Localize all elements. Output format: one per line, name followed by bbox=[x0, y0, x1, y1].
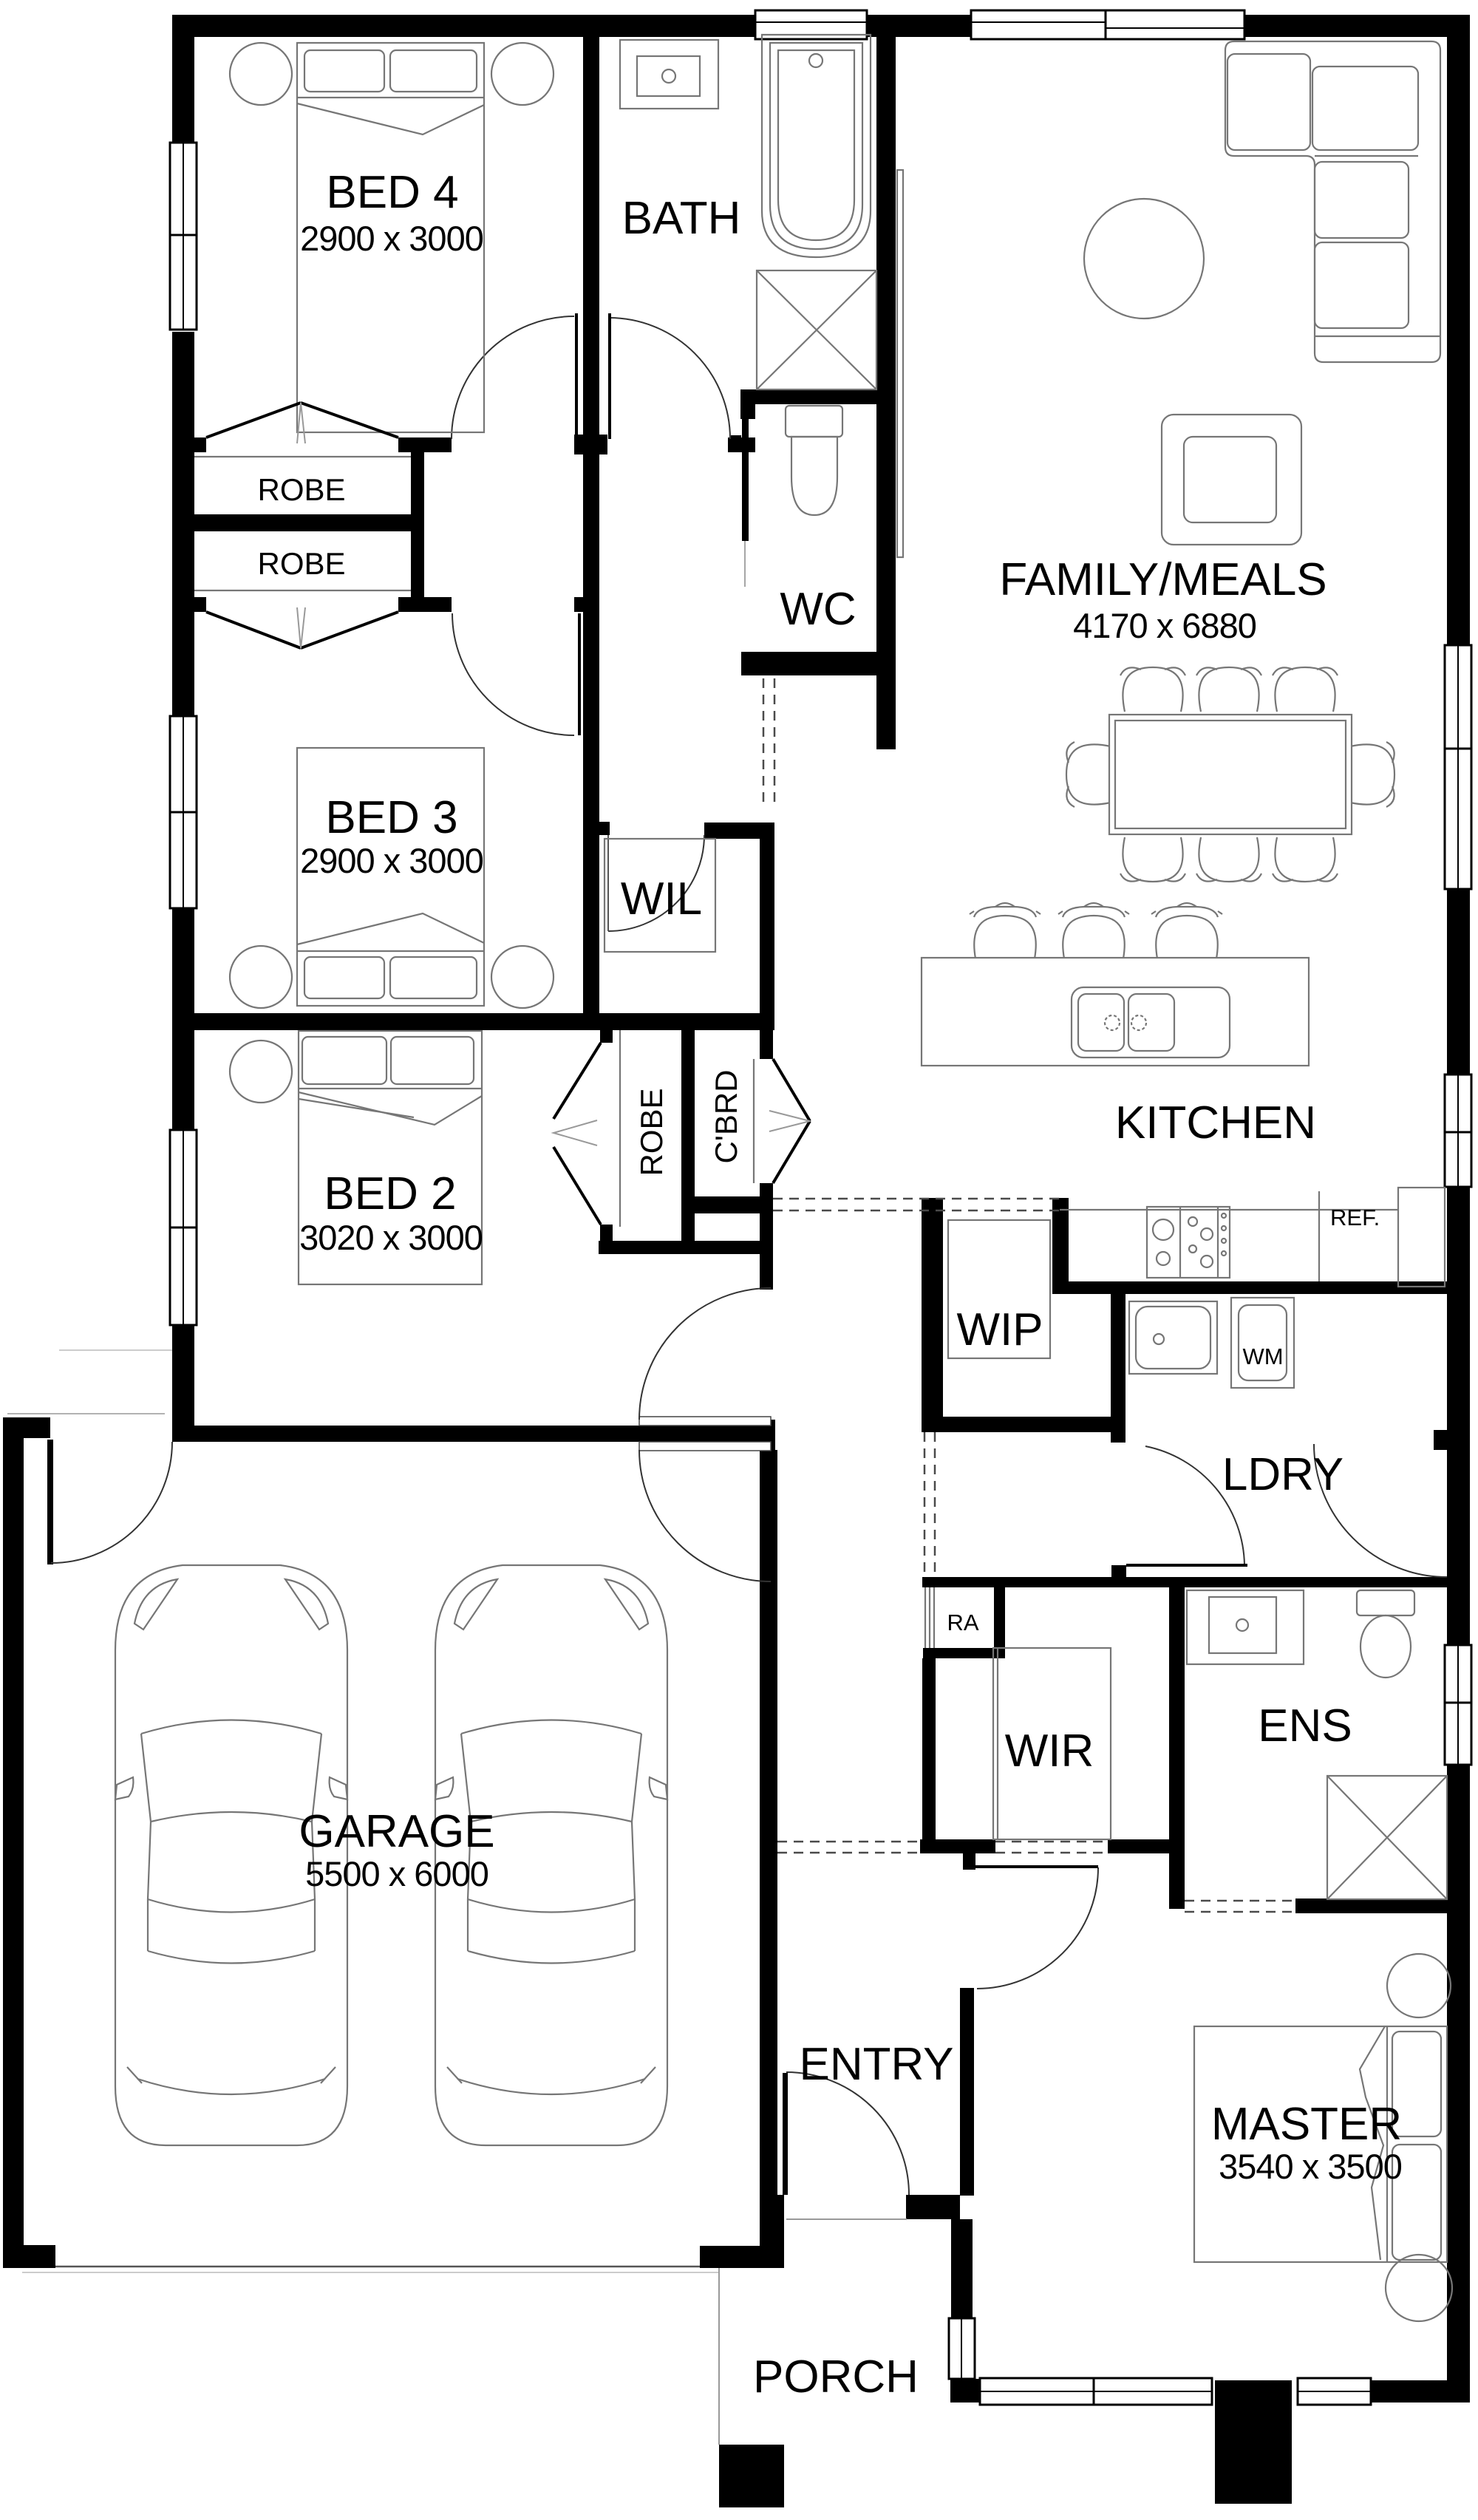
svg-text:REF.: REF. bbox=[1330, 1205, 1380, 1230]
svg-text:4170 x 6880: 4170 x 6880 bbox=[1073, 606, 1256, 645]
svg-text:RA: RA bbox=[947, 1610, 978, 1635]
svg-text:C'BRD: C'BRD bbox=[709, 1069, 743, 1163]
svg-text:WC: WC bbox=[780, 584, 856, 635]
svg-text:ROBE: ROBE bbox=[634, 1088, 669, 1176]
svg-text:MASTER: MASTER bbox=[1211, 2099, 1402, 2150]
svg-text:3020 x 3000: 3020 x 3000 bbox=[299, 1218, 483, 1257]
svg-text:ENS: ENS bbox=[1258, 1700, 1352, 1751]
svg-text:WIR: WIR bbox=[1005, 1726, 1094, 1777]
svg-text:3540 x 3500: 3540 x 3500 bbox=[1219, 2147, 1402, 2186]
svg-text:FAMILY/MEALS: FAMILY/MEALS bbox=[999, 554, 1327, 605]
svg-text:BATH: BATH bbox=[622, 193, 741, 244]
svg-text:WM: WM bbox=[1242, 1344, 1283, 1369]
svg-text:ROBE: ROBE bbox=[257, 546, 345, 581]
svg-text:5500 x 6000: 5500 x 6000 bbox=[305, 1854, 488, 1893]
svg-text:BED 3: BED 3 bbox=[325, 792, 457, 843]
svg-text:PORCH: PORCH bbox=[753, 2352, 919, 2402]
svg-text:KITCHEN: KITCHEN bbox=[1115, 1097, 1316, 1148]
svg-text:LDRY: LDRY bbox=[1222, 1449, 1344, 1500]
svg-text:WIP: WIP bbox=[956, 1304, 1043, 1355]
svg-text:GARAGE: GARAGE bbox=[299, 1806, 494, 1857]
svg-text:BED 2: BED 2 bbox=[324, 1168, 456, 1219]
svg-text:WIL: WIL bbox=[621, 874, 702, 924]
svg-text:BED 4: BED 4 bbox=[326, 167, 458, 218]
svg-text:ROBE: ROBE bbox=[257, 472, 345, 507]
svg-text:ENTRY: ENTRY bbox=[799, 2039, 953, 2090]
svg-text:2900 x 3000: 2900 x 3000 bbox=[300, 219, 483, 258]
svg-text:2900 x 3000: 2900 x 3000 bbox=[300, 841, 483, 880]
